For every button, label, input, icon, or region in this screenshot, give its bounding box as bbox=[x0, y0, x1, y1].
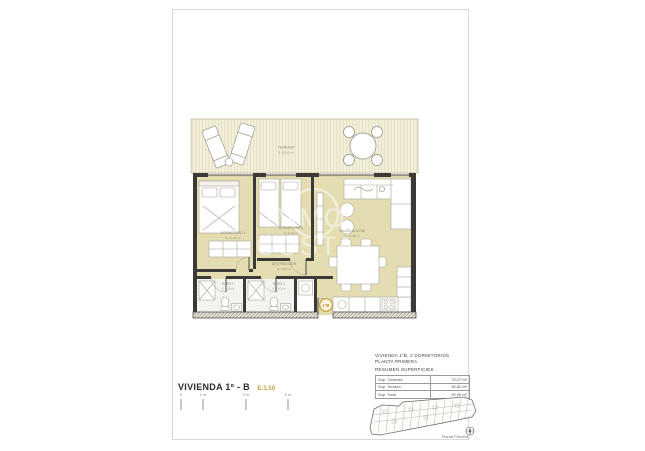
keyplan-caption: Planta Primera bbox=[431, 434, 479, 439]
floorplan-sheet-screenshot: TERRAZA S: 25,82 m² bbox=[0, 0, 645, 451]
shower-2-icon bbox=[248, 281, 264, 300]
drawing-sheet: TERRAZA S: 25,82 m² bbox=[172, 9, 469, 440]
double-bed-icon bbox=[199, 181, 239, 233]
distribuidor-area: S: 2,80 m² bbox=[277, 267, 291, 271]
washer-icon bbox=[299, 281, 313, 295]
scale-tick: 1 m bbox=[191, 392, 215, 415]
table-row: Sup. Terraza 25,82 m² bbox=[376, 383, 470, 391]
sink-1-icon bbox=[232, 304, 242, 312]
scale-bar: 0 1 m 3 m 5 m bbox=[173, 392, 323, 416]
svg-text:IMMO: IMMO bbox=[265, 203, 347, 233]
bano1-area: S: 3,60 m² bbox=[221, 287, 234, 291]
toilet-1-icon bbox=[221, 297, 229, 311]
scale-tick: 3 m bbox=[234, 392, 258, 415]
dorm1-label: DORMITORIO 1 bbox=[221, 231, 246, 235]
unit-badge: 1ºB bbox=[320, 299, 333, 312]
scale-tick: 5 m bbox=[276, 392, 300, 415]
bano2-area: S: 3,60 m² bbox=[272, 287, 285, 291]
page-title: VIVIENDA 1º - B bbox=[178, 382, 250, 392]
svg-text:1ºB: 1ºB bbox=[323, 303, 330, 308]
hatched-walls bbox=[193, 312, 416, 318]
dorm2-area: S: 9,40 m² bbox=[284, 231, 298, 235]
dorm1-area: S: 12,15 m² bbox=[225, 236, 241, 240]
table-row: Sup. Vivienda 73,27 m² bbox=[376, 375, 470, 383]
surface-summary: VIVIENDA 1ºB. 2 DORMITORIOS PLANTA PRIME… bbox=[375, 353, 470, 399]
kitchen-counter-icon bbox=[333, 297, 411, 312]
floor-plan: TERRAZA S: 25,82 m² bbox=[186, 109, 421, 326]
sink-2-icon bbox=[281, 304, 291, 312]
terrace-area: TERRAZA S: 25,82 m² bbox=[191, 119, 418, 173]
distribuidor-label: DISTRIBUIDOR bbox=[272, 262, 297, 266]
salon-label: SALÓN-COCINA bbox=[339, 228, 366, 233]
tall-unit-icon bbox=[397, 267, 411, 297]
wardrobe-1-icon bbox=[209, 241, 251, 257]
bano2-label: BAÑO 2 bbox=[273, 281, 285, 286]
svg-text:COSTA: COSTA bbox=[255, 231, 356, 261]
salon-area: S: 21,38 m² bbox=[344, 234, 360, 238]
terrace-label: TERRAZA bbox=[278, 146, 295, 150]
summary-subtitle: RESUMEN SUPERFICIES bbox=[375, 367, 470, 373]
terrace-area-label: S: 25,82 m² bbox=[278, 151, 294, 155]
bano1-label: BAÑO 1 bbox=[222, 281, 234, 286]
dorm2-label: DORMITORIO 2 bbox=[279, 226, 304, 230]
scale-tick: 0 bbox=[169, 392, 193, 415]
toilet-2-icon bbox=[270, 297, 278, 311]
